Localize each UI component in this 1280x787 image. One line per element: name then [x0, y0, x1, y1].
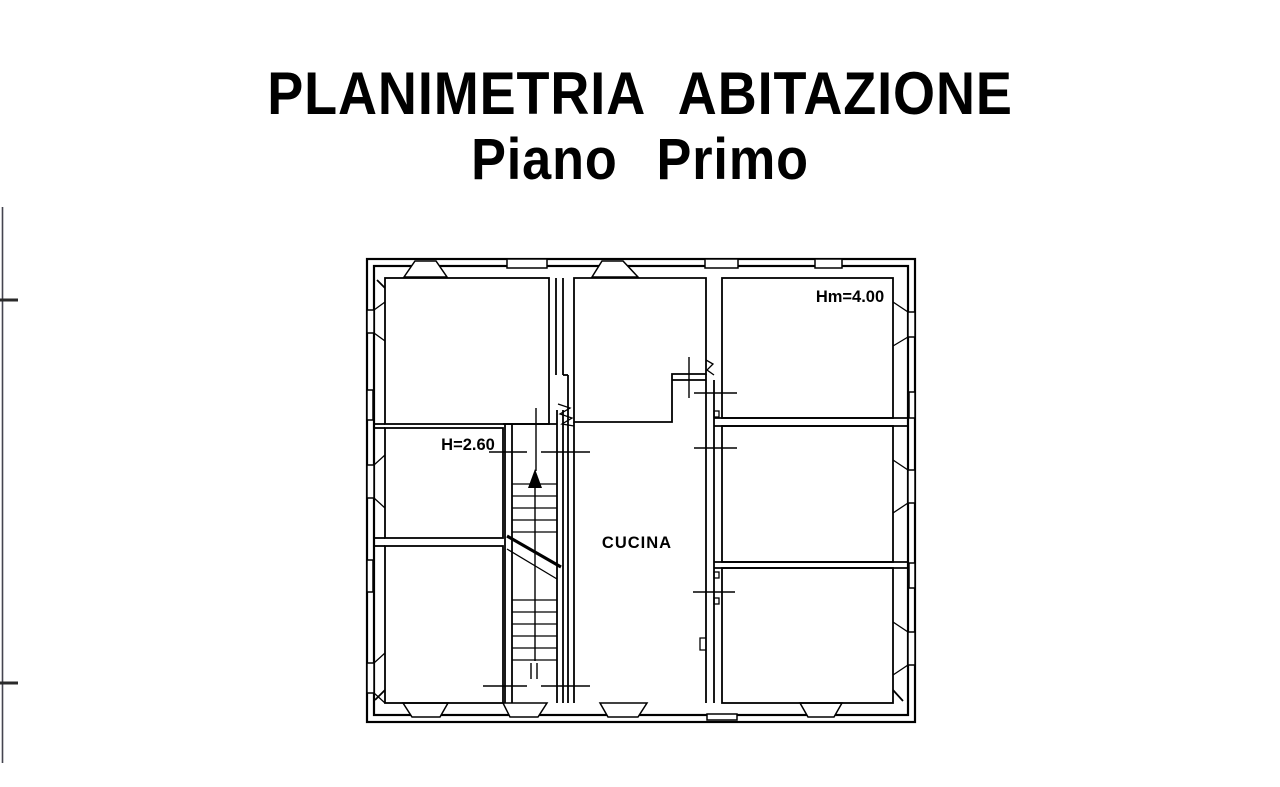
label-kitchen: CUCINA [602, 534, 672, 552]
wall-recess-left-2 [367, 560, 373, 592]
wall-recess-right-1 [909, 392, 915, 418]
windows-left-wall [367, 302, 385, 703]
wall-recess-bottom [707, 714, 737, 720]
staircase [507, 469, 561, 679]
window-right-2 [908, 470, 915, 503]
outer-wall [367, 259, 915, 722]
page-edge-artifact [0, 207, 18, 763]
wall-recess-top-1 [507, 259, 547, 268]
label-ceiling-height-main: Hm=4.00 [816, 288, 884, 306]
wall-recess-left-1 [367, 390, 373, 420]
room-mid-right [722, 426, 893, 562]
corner-chamfer-se [893, 690, 903, 701]
opening-break-mark-corridor [706, 360, 714, 375]
room-top-left [385, 278, 549, 424]
stair-break-line [507, 536, 561, 567]
window-splay-top-center [592, 261, 638, 277]
wall-recess-right-2 [909, 563, 915, 588]
interior-walls [374, 278, 908, 703]
stair-break-line-2 [507, 549, 557, 579]
door-markers [483, 357, 737, 686]
opening-break-mark-stair [558, 404, 574, 426]
windows-top-wall [404, 259, 842, 277]
windows-right-wall [893, 302, 915, 675]
window-left-2 [367, 465, 374, 498]
rooms [375, 278, 903, 703]
window-splay-bottom-4 [800, 703, 842, 717]
corner-step-nw [377, 280, 385, 288]
window-left-3 [367, 663, 374, 693]
room-bottom-right [722, 568, 893, 703]
floorplan-drawing: Hm=4.00 H=2.60 CUCINA [0, 0, 1280, 787]
label-ceiling-height-stair: H=2.60 [441, 436, 495, 454]
window-right-3 [908, 632, 915, 665]
window-left-1 [367, 310, 374, 333]
windows-bottom-wall [403, 703, 842, 720]
room-bottom-left [385, 546, 503, 703]
window-splay-bottom-3 [600, 703, 647, 717]
window-right-1 [908, 312, 915, 337]
page: PLANIMETRIA ABITAZIONE Piano Primo [0, 0, 1280, 787]
wall-recess-top-2 [705, 259, 738, 268]
window-splay-top-left [404, 261, 447, 277]
stair-direction-arrow [528, 469, 542, 661]
room-top-center [574, 278, 706, 422]
stair-start-ticks [531, 663, 537, 679]
wall-recess-top-3 [815, 259, 842, 268]
